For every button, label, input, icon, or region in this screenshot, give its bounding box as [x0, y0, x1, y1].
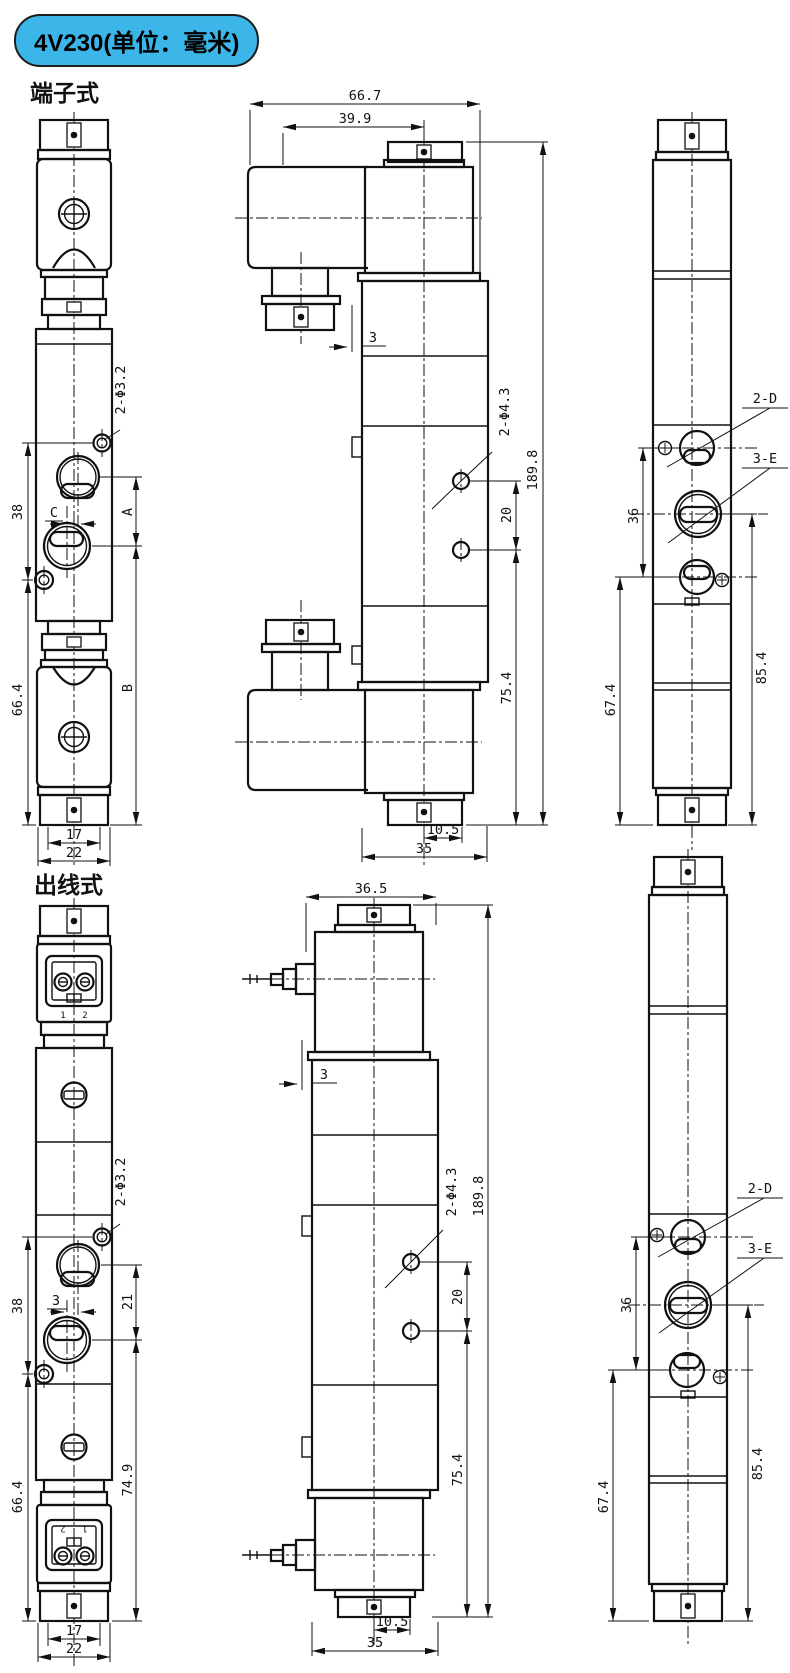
din-connector-box	[248, 620, 368, 790]
dim-A: A	[120, 508, 136, 516]
terminal-number: 2	[60, 1523, 65, 1533]
dim-B: B	[120, 684, 136, 692]
dim-66-4: 66.4	[10, 1481, 26, 1514]
leadwire-front-view: 1 2	[10, 898, 142, 1668]
dim-22: 22	[66, 1641, 82, 1657]
side-tab	[352, 646, 362, 664]
dim-3: 3	[369, 330, 377, 346]
mounting-hole	[403, 1319, 419, 1343]
solenoid-housing	[315, 932, 423, 1052]
port-label-3E: 3-E	[753, 451, 777, 467]
dim-21: 21	[120, 1294, 136, 1310]
dim-20: 20	[450, 1289, 466, 1305]
dim-36: 36	[619, 1297, 635, 1313]
leadwire-bottom-view: 2-D 3-E 36 67.4 85.4	[596, 849, 783, 1645]
dim-10-5: 10.5	[376, 1614, 409, 1630]
dim-20: 20	[499, 507, 515, 523]
knurled-cap	[654, 857, 722, 887]
dim-189-8: 189.8	[471, 1176, 487, 1217]
dim-36: 36	[626, 508, 642, 524]
port	[57, 1240, 99, 1320]
dim-38: 38	[10, 1298, 26, 1314]
dim-39-9: 39.9	[339, 111, 372, 127]
solenoid-housing	[315, 1498, 423, 1590]
hole-callout: 2-Φ3.2	[113, 1158, 129, 1207]
port-label-3E: 3-E	[748, 1241, 772, 1257]
terminal-number: 1	[60, 1011, 65, 1021]
port-label-2D: 2-D	[748, 1181, 772, 1197]
side-tab	[352, 437, 362, 457]
dimension-lines	[615, 408, 788, 825]
din-connector-box	[248, 167, 368, 330]
cover-screw	[59, 722, 89, 752]
dimension-lines	[608, 1198, 783, 1621]
dim-74-9: 74.9	[120, 1464, 136, 1497]
knurled-cap	[658, 795, 726, 825]
leadwire-side-view: 36.5 3 2-Φ4.3 189.8 20 75.4 10.5 35	[242, 881, 493, 1656]
terminal-front-view: 2-Φ3.2 38 C A B 66.4 17 22	[10, 112, 142, 868]
technical-drawing-canvas: 4V230(单位：毫米) 端子式 出线式	[0, 0, 790, 1673]
dim-3: 3	[52, 1293, 60, 1309]
side-tab	[302, 1437, 312, 1457]
dim-85-4: 85.4	[750, 1448, 766, 1481]
dim-75-4: 75.4	[499, 672, 515, 705]
dim-189-8: 189.8	[525, 450, 541, 491]
mounting-hole	[94, 1223, 111, 1251]
port-label-2D: 2-D	[753, 391, 777, 407]
solenoid-housing	[365, 167, 473, 273]
port	[57, 452, 99, 532]
terminal-side-view: 66.7 39.9 3 2-Φ4.3 20 189.8 75.4 10.5 35	[235, 88, 548, 868]
valve-drawing: 2-Φ3.2 38 C A B 66.4 17 22	[0, 0, 790, 1673]
dim-35: 35	[416, 841, 432, 857]
dim-22: 22	[66, 845, 82, 861]
side-tab	[302, 1216, 312, 1236]
dim-75-4: 75.4	[450, 1454, 466, 1487]
knurled-cap	[40, 1591, 108, 1621]
terminal-face	[46, 1520, 102, 1570]
dim-3: 3	[320, 1067, 328, 1083]
hole-callout: 2-Φ3.2	[113, 366, 129, 415]
dim-67-4: 67.4	[603, 684, 619, 717]
pilot-hole	[714, 1371, 727, 1384]
terminal-number: 2	[82, 1011, 87, 1021]
knurled-cap	[654, 1591, 722, 1621]
mounting-hole	[453, 538, 469, 562]
terminal-bottom-view: 2-D 3-E 36 67.4 85.4	[603, 112, 788, 850]
dim-38: 38	[10, 504, 26, 520]
mounting-hole	[94, 429, 111, 457]
dim-85-4: 85.4	[754, 652, 770, 685]
dim-66-4: 66.4	[10, 684, 26, 717]
knurled-cap	[40, 906, 108, 936]
knurled-cap	[40, 120, 108, 150]
dim-17: 17	[66, 827, 82, 843]
terminal-number: 1	[82, 1523, 87, 1533]
pilot-hole	[651, 1229, 664, 1242]
hole-callout: 2-Φ4.3	[444, 1168, 460, 1217]
dim-36-5: 36.5	[355, 881, 388, 897]
pilot-hole	[716, 574, 729, 587]
knurled-cap	[338, 905, 410, 925]
mounting-hole	[35, 566, 53, 594]
dim-10-5: 10.5	[427, 822, 460, 838]
dim-C: C	[50, 505, 58, 521]
dim-35: 35	[367, 1635, 383, 1651]
valve-body	[312, 1060, 438, 1490]
dim-17: 17	[66, 1623, 82, 1639]
din-connector-stack	[41, 270, 107, 329]
knurled-cap	[40, 795, 108, 825]
hole-callout: 2-Φ4.3	[497, 388, 513, 437]
cover-screw	[59, 199, 89, 229]
dim-67-4: 67.4	[596, 1481, 612, 1514]
dim-66-7: 66.7	[349, 88, 382, 104]
port	[44, 1300, 90, 1372]
knurled-cap	[658, 120, 726, 152]
